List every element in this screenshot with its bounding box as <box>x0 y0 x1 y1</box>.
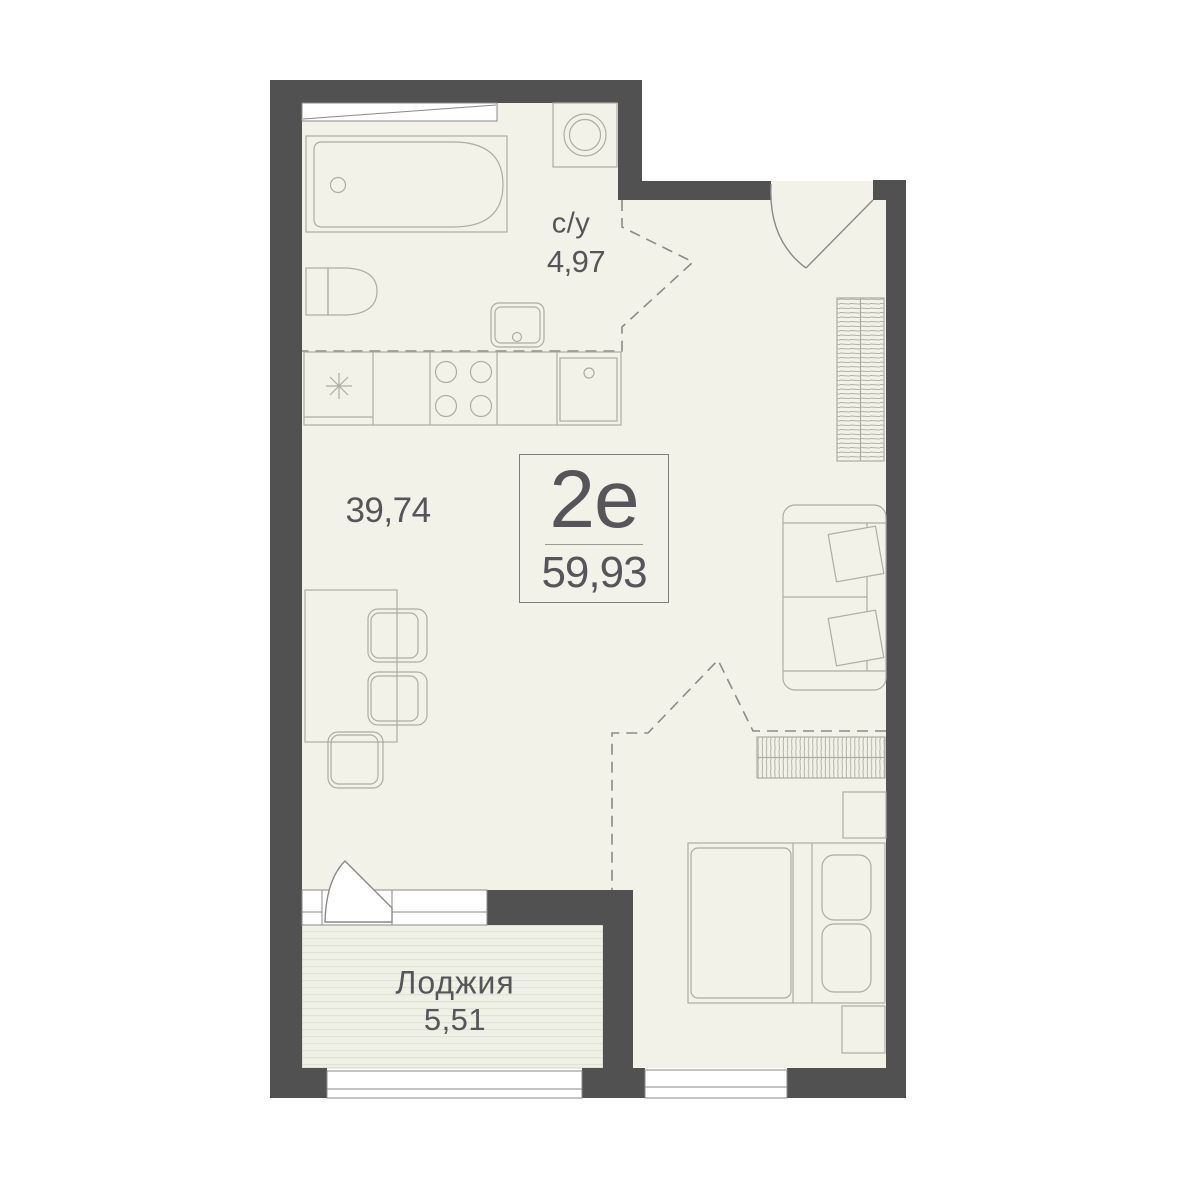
floor-entry-opening <box>771 181 873 200</box>
loggia-partition-pane <box>302 890 322 925</box>
wall-loggia-partition <box>487 890 603 925</box>
wall-top-right <box>642 181 771 200</box>
unit-box-divider <box>545 544 643 546</box>
wall-bottom-2 <box>582 1068 645 1098</box>
wall-bottom-1 <box>270 1068 327 1098</box>
floor-bedroom-zone <box>633 890 886 1068</box>
loggia-label: Лоджия <box>395 965 514 1002</box>
loggia-bottom-window <box>327 1071 582 1098</box>
living-area: 39,74 <box>345 491 430 531</box>
floor-plan: с/у 4,97 39,74 Лоджия 5,51 2е 59,93 <box>0 0 1181 1181</box>
wall-loggia-right <box>603 890 633 1098</box>
sofa-pillow <box>828 610 884 666</box>
unit-total-area: 59,93 <box>541 551 646 595</box>
loggia-area: 5,51 <box>424 1002 486 1038</box>
bedroom-window <box>645 1070 787 1098</box>
wall-step <box>618 103 642 200</box>
wall-bottom-3 <box>787 1068 906 1098</box>
wall-right <box>886 197 906 1098</box>
loggia-window <box>392 890 487 925</box>
unit-info-box: 2е 59,93 <box>519 454 669 603</box>
wardrobe <box>837 298 884 461</box>
unit-type-label: 2е <box>549 462 638 537</box>
closet <box>757 737 885 778</box>
wall-top-left <box>270 80 642 103</box>
bathroom-area: 4,97 <box>547 244 605 280</box>
wall-left <box>270 80 302 1098</box>
bathroom-label: с/у <box>552 208 591 241</box>
sofa-pillow <box>828 526 884 582</box>
bathroom-vent-window <box>302 103 497 121</box>
